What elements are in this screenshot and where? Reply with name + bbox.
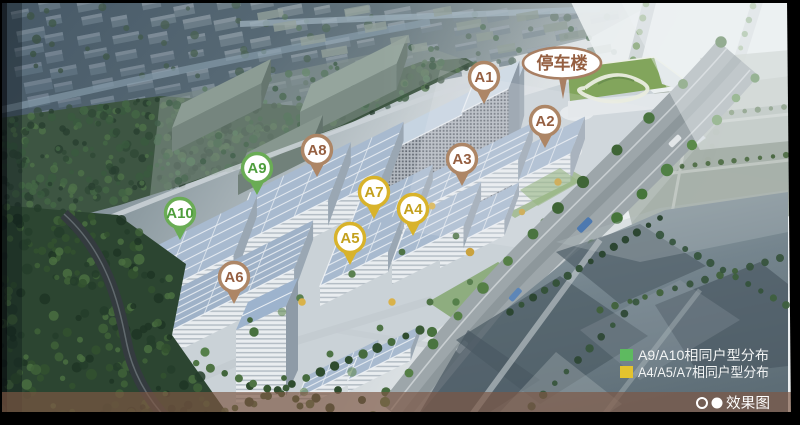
svg-text:A9/A10相同户型分布: A9/A10相同户型分布	[638, 347, 769, 363]
svg-text:A3: A3	[452, 151, 471, 168]
svg-text:A5: A5	[340, 230, 359, 247]
svg-text:A8: A8	[307, 142, 326, 159]
svg-text:A7: A7	[364, 184, 383, 201]
svg-text:A10: A10	[166, 205, 194, 222]
svg-text:A4/A5/A7相同户型分布: A4/A5/A7相同户型分布	[638, 364, 769, 380]
svg-text:A2: A2	[535, 113, 554, 130]
svg-text:A6: A6	[224, 269, 243, 286]
svg-text:停车楼: 停车楼	[537, 53, 588, 73]
svg-text:效果图: 效果图	[726, 395, 770, 412]
svg-text:A4: A4	[403, 201, 423, 218]
svg-text:A9: A9	[247, 160, 266, 177]
svg-text:A1: A1	[474, 69, 493, 86]
